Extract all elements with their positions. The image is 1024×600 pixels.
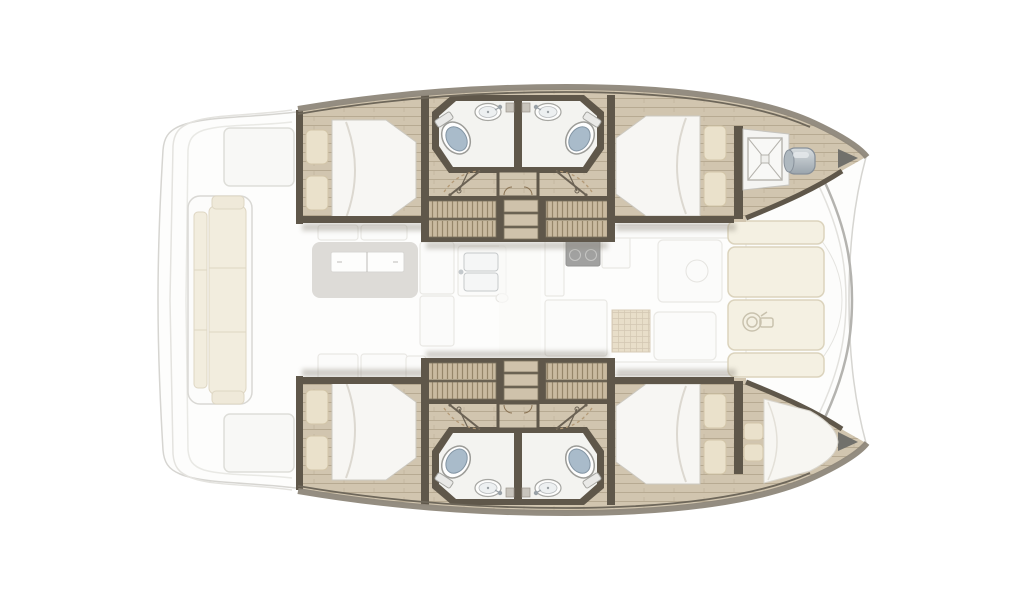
- grid-mat: [612, 310, 650, 352]
- galley-sink-basin: [464, 253, 498, 271]
- sunpad-cushion: [728, 221, 824, 244]
- bench-end-pillow: [212, 391, 244, 404]
- central-walkway: [499, 245, 541, 355]
- pillow: [744, 444, 763, 461]
- hatch-handle: [761, 155, 769, 163]
- cabinet: [545, 300, 607, 356]
- bench-seat-cushion: [209, 206, 246, 394]
- dinette-panel: [658, 240, 722, 302]
- pillow: [744, 423, 763, 440]
- sunpad-cushion: [728, 353, 824, 377]
- dinette-panel: [654, 312, 716, 360]
- aft-cockpit: [188, 196, 252, 404]
- galley-counter: [420, 242, 454, 294]
- galley-sink-basin: [464, 273, 498, 291]
- floor-plan-canvas: [0, 0, 1024, 600]
- bench-back-cushion: [194, 212, 207, 388]
- engine-hatch-starboard: [224, 414, 294, 472]
- sunpad-cushion: [728, 247, 824, 297]
- galley-faucet: [459, 270, 464, 275]
- windlass-highlight: [793, 152, 809, 158]
- galley-counter: [420, 296, 454, 346]
- windlass-gypsy: [784, 150, 794, 172]
- bench-end-pillow: [212, 196, 244, 209]
- sunpad-cushion: [728, 300, 824, 350]
- engine-hatch-port: [224, 128, 294, 186]
